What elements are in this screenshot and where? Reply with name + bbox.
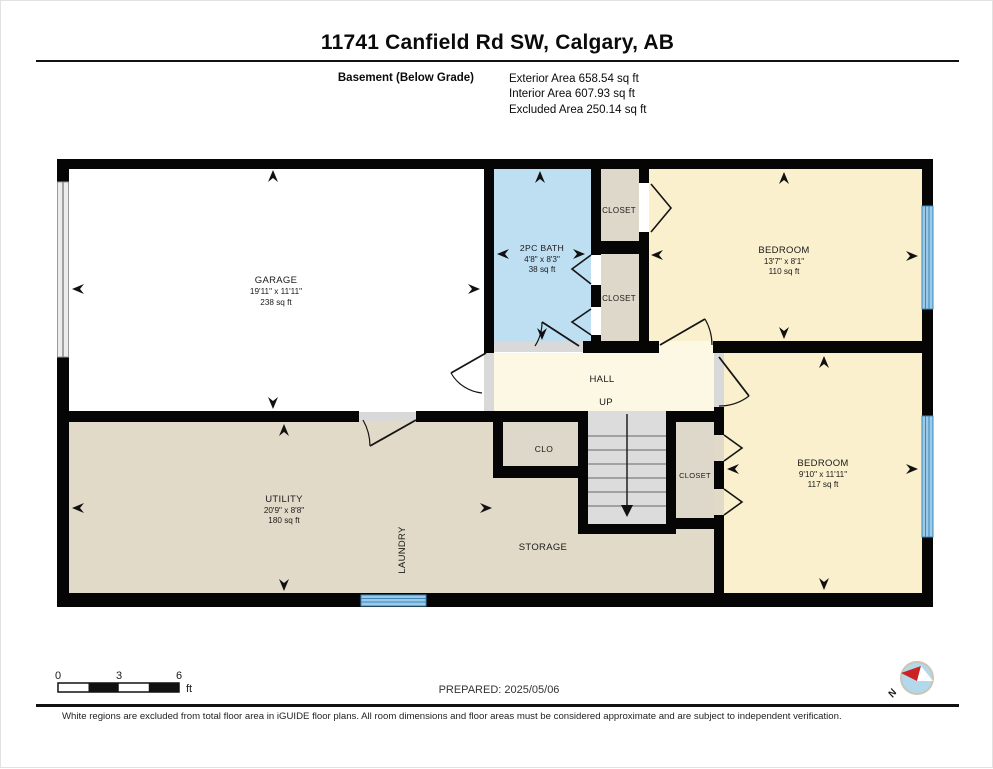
prepared-date: PREPARED: 2025/05/06: [439, 684, 560, 696]
scale-unit: ft: [186, 683, 192, 695]
utility-window: [361, 595, 426, 606]
closet-top-floor: [601, 169, 639, 241]
bath-dims: 4'8" x 8'3": [524, 255, 560, 264]
closet-top-label: CLOSET: [602, 206, 636, 215]
wall-segment: [484, 169, 494, 353]
bedroom-upper-area: 110 sq ft: [769, 267, 801, 276]
closet-lower-floor: [676, 422, 714, 518]
wall-segment: [639, 169, 649, 183]
wall-segment: [57, 411, 359, 422]
compass-north-label: N: [886, 687, 900, 700]
bath-door-threshold: [494, 342, 583, 352]
scale-bar: 0 3 6 ft: [55, 670, 192, 695]
garage-door: [58, 182, 69, 357]
garage-utility-door-threshold: [359, 412, 416, 422]
hall-up-label: UP: [599, 397, 613, 408]
disclaimer-text: White regions are excluded from total fl…: [62, 711, 842, 722]
wall-segment: [714, 407, 724, 435]
closet-lower-label: CLOSET: [679, 471, 711, 480]
utility-area: 180 sq ft: [268, 516, 300, 525]
bedroom-upper-window: [922, 206, 933, 309]
wall-segment: [416, 411, 588, 422]
bedroom-upper-door-opening: [659, 341, 713, 353]
wall-segment: [713, 341, 922, 353]
utility-dims: 20'9" x 8'8": [264, 506, 304, 515]
footer-divider: [36, 704, 959, 707]
room-floors: [69, 169, 922, 593]
bedroom-lower-area: 117 sq ft: [808, 480, 840, 489]
storage-label: STORAGE: [519, 542, 567, 553]
garage-area: 238 sq ft: [260, 298, 292, 307]
wall-segment: [57, 159, 933, 169]
wall-segment: [578, 524, 676, 534]
scale-tick-6: 6: [176, 670, 182, 682]
wall-segment: [57, 593, 933, 607]
bedroom-upper-name: BEDROOM: [758, 245, 809, 256]
garage-dims: 19'11" x 11'11": [250, 287, 302, 296]
bath-name: 2PC BATH: [520, 243, 564, 253]
bedroom-lower-dims: 9'10" x 11'11": [799, 470, 847, 479]
floor-plan-svg: GARAGE 19'11" x 11'11" 238 sq ft 2PC BAT…: [1, 1, 993, 769]
hall-label: HALL: [590, 374, 615, 385]
utility-name: UTILITY: [265, 494, 303, 505]
wall-segment: [493, 422, 503, 466]
wall-segment: [714, 515, 724, 593]
hall-garage-door-threshold: [484, 353, 494, 411]
wall-segment: [639, 232, 649, 353]
wall-segment: [666, 422, 676, 534]
bedroom-lower-window: [922, 416, 933, 537]
wall-segment: [714, 461, 724, 489]
scale-tick-3: 3: [116, 670, 122, 682]
clo-label: CLO: [535, 444, 553, 454]
bath-area: 38 sq ft: [529, 265, 557, 274]
bedroom-lower-name: BEDROOM: [797, 458, 848, 469]
garage-name: GARAGE: [255, 275, 297, 286]
wall-segment: [583, 341, 659, 353]
wall-segment: [493, 466, 588, 478]
closet-mid-label: CLOSET: [602, 294, 636, 303]
scale-tick-0: 0: [55, 670, 61, 682]
floor-plan-page: { "page": { "title": "11741 Canfield Rd …: [0, 0, 993, 768]
compass-icon: N: [886, 662, 933, 700]
wall-segment: [578, 422, 588, 534]
bedroom-upper-dims: 13'7" x 8'1": [764, 257, 804, 266]
utility-label: UTILITY 20'9" x 8'8" 180 sq ft: [264, 494, 304, 525]
laundry-label: LAUNDRY: [397, 526, 408, 574]
wall-segment: [591, 285, 601, 307]
